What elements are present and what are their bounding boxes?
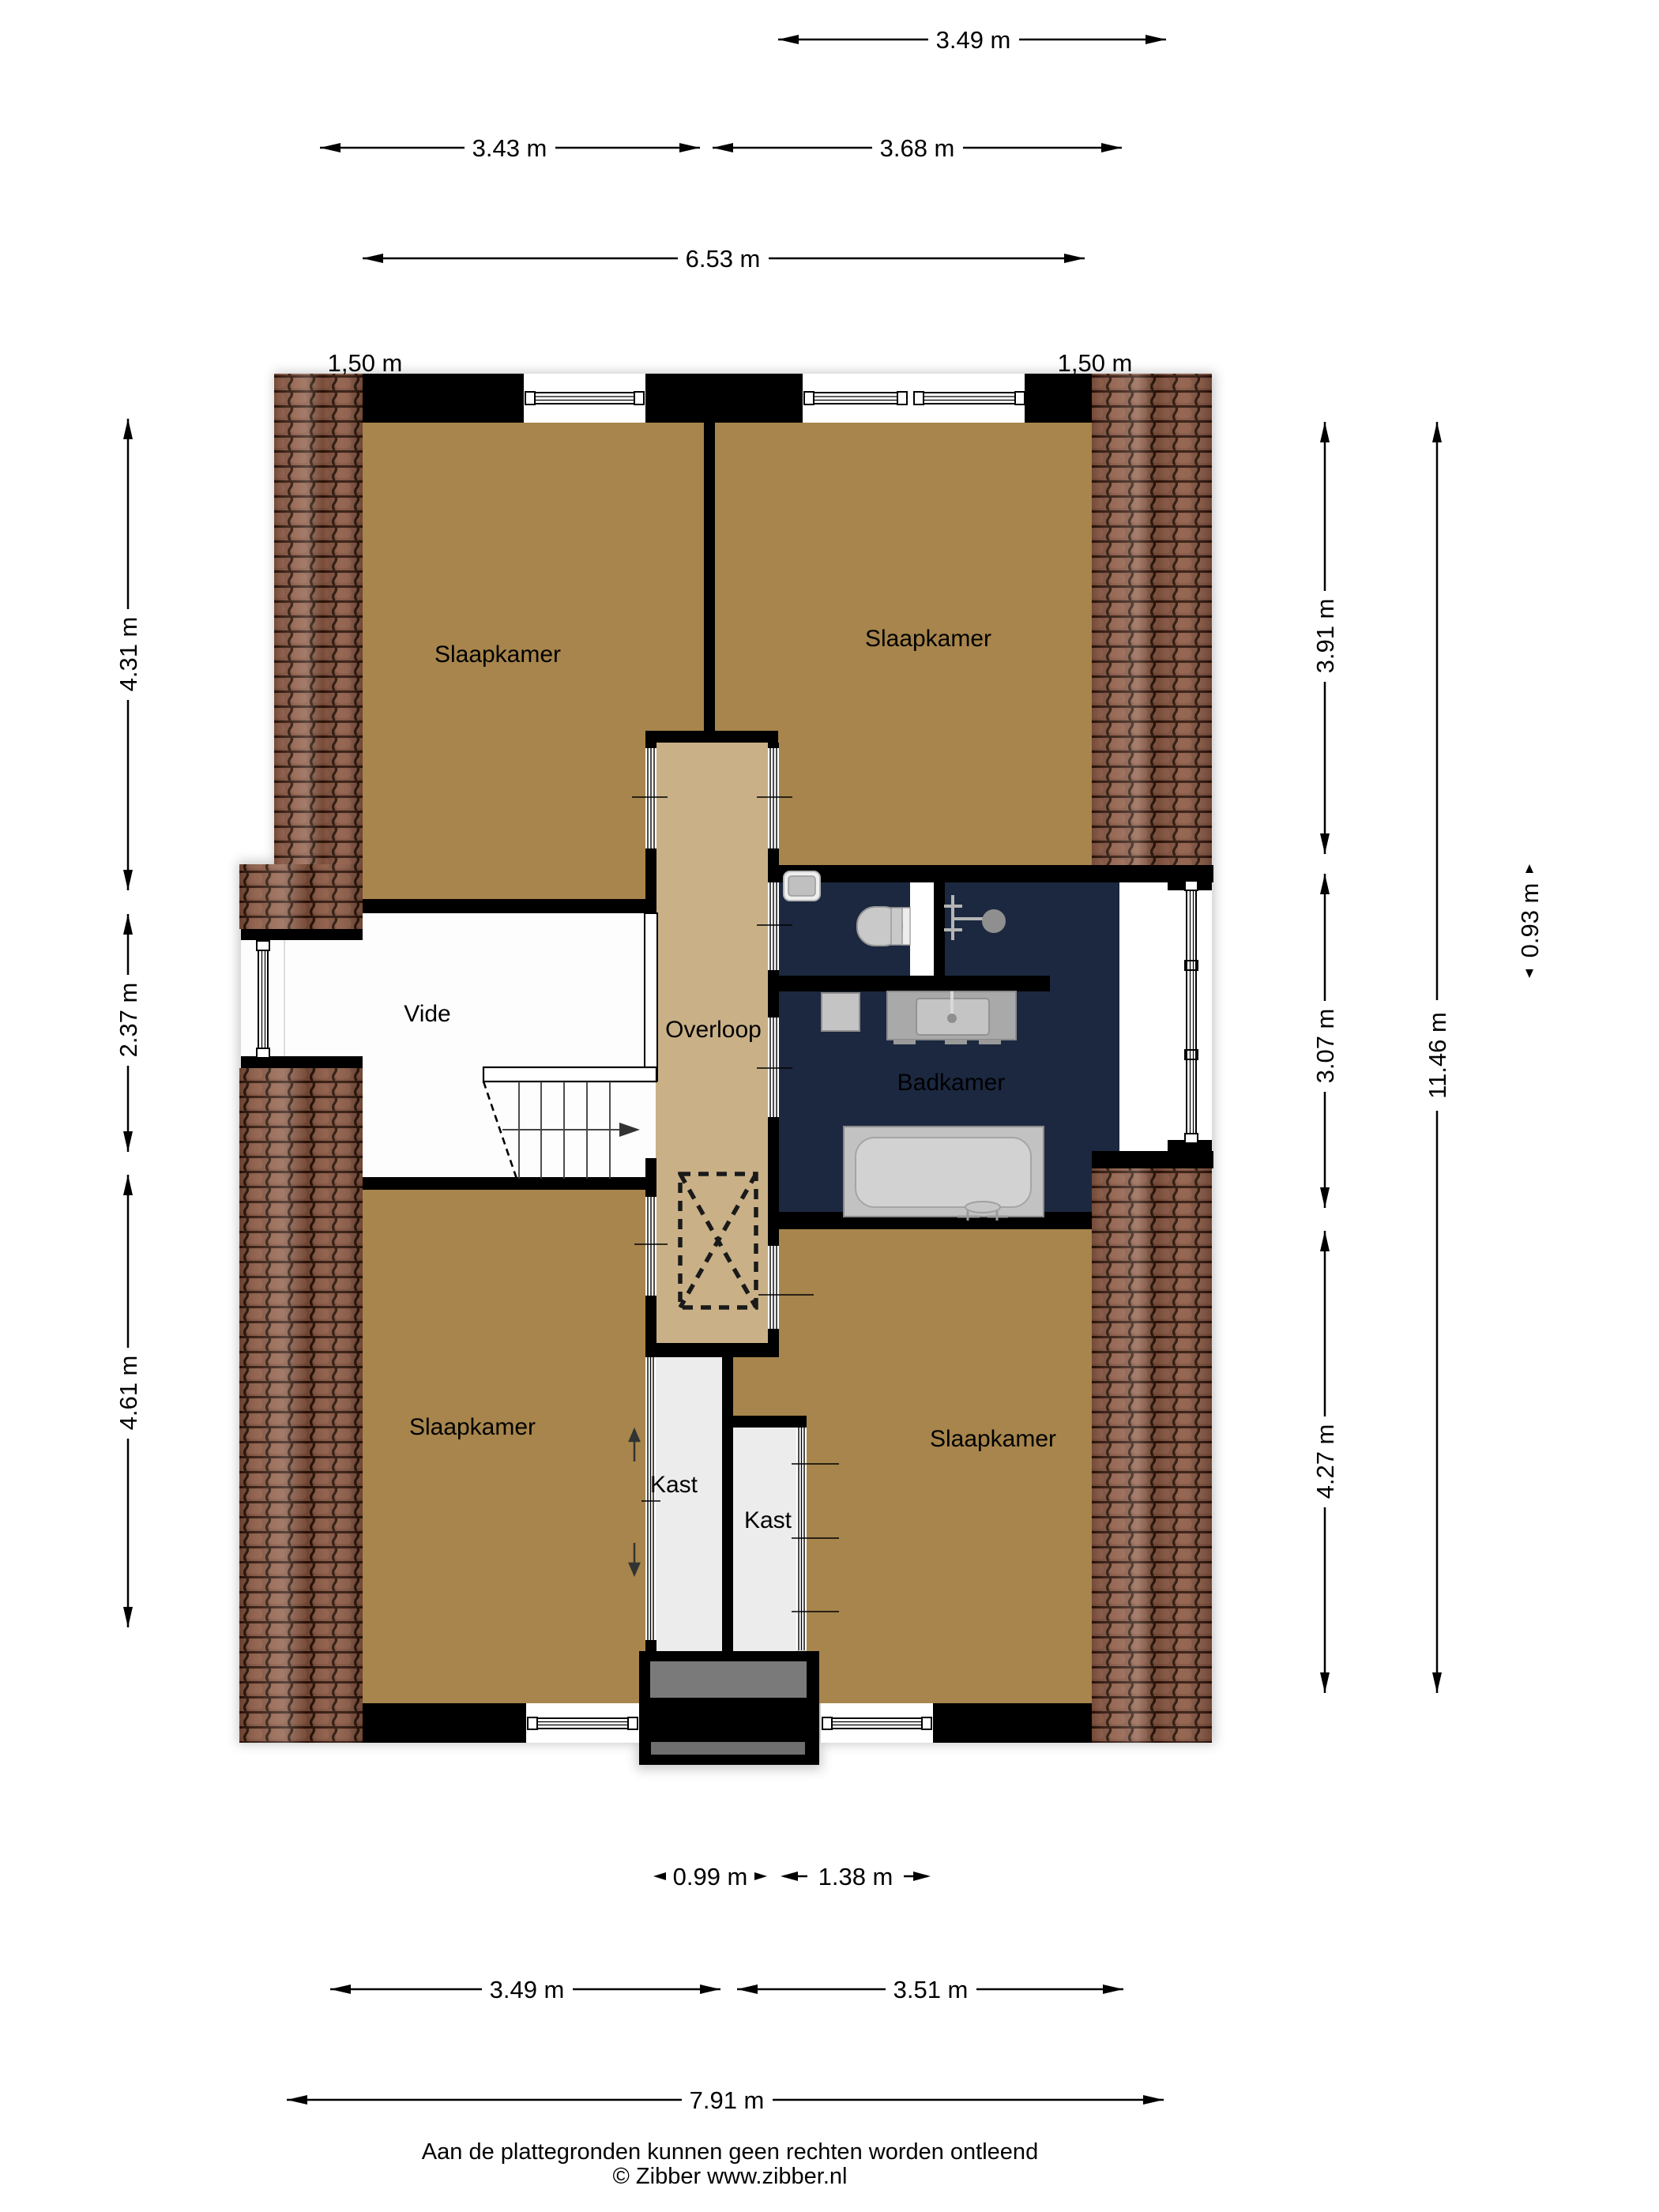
svg-text:Slaapkamer: Slaapkamer (434, 641, 561, 668)
svg-text:Vide: Vide (404, 1001, 451, 1027)
svg-text:3.91 m: 3.91 m (1311, 599, 1339, 674)
svg-text:Slaapkamer: Slaapkamer (865, 626, 991, 652)
svg-text:Kast: Kast (744, 1507, 792, 1533)
svg-text:1,50 m: 1,50 m (328, 349, 403, 377)
svg-text:3.07 m: 3.07 m (1311, 1009, 1339, 1084)
svg-text:4.27 m: 4.27 m (1311, 1424, 1339, 1499)
svg-text:11.46 m: 11.46 m (1424, 1012, 1451, 1099)
svg-text:Slaapkamer: Slaapkamer (930, 1426, 1056, 1452)
svg-text:Overloop: Overloop (665, 1017, 762, 1043)
svg-text:0.93 m: 0.93 m (1516, 883, 1544, 958)
svg-text:3.51 m: 3.51 m (893, 1976, 969, 2003)
svg-text:3.68 m: 3.68 m (880, 134, 955, 162)
svg-text:2.37 m: 2.37 m (115, 983, 142, 1058)
svg-text:3.49 m: 3.49 m (490, 1976, 565, 2003)
svg-text:Slaapkamer: Slaapkamer (409, 1414, 536, 1440)
svg-text:Kast: Kast (650, 1472, 698, 1498)
svg-text:3.43 m: 3.43 m (472, 134, 547, 162)
svg-text:3.49 m: 3.49 m (936, 26, 1011, 54)
svg-text:4.31 m: 4.31 m (115, 617, 142, 692)
svg-text:© Zibber www.zibber.nl: © Zibber www.zibber.nl (613, 2164, 848, 2189)
svg-text:6.53 m: 6.53 m (686, 245, 761, 273)
svg-text:Aan de plattegronden kunnen ge: Aan de plattegronden kunnen geen rechten… (422, 2139, 1038, 2165)
svg-text:Badkamer: Badkamer (897, 1070, 1006, 1096)
svg-text:7.91 m: 7.91 m (690, 2086, 765, 2114)
svg-text:1.38 m: 1.38 m (818, 1863, 893, 1890)
svg-text:0.99 m: 0.99 m (673, 1863, 748, 1890)
svg-text:1,50 m: 1,50 m (1058, 349, 1133, 377)
svg-text:4.61 m: 4.61 m (115, 1356, 142, 1431)
